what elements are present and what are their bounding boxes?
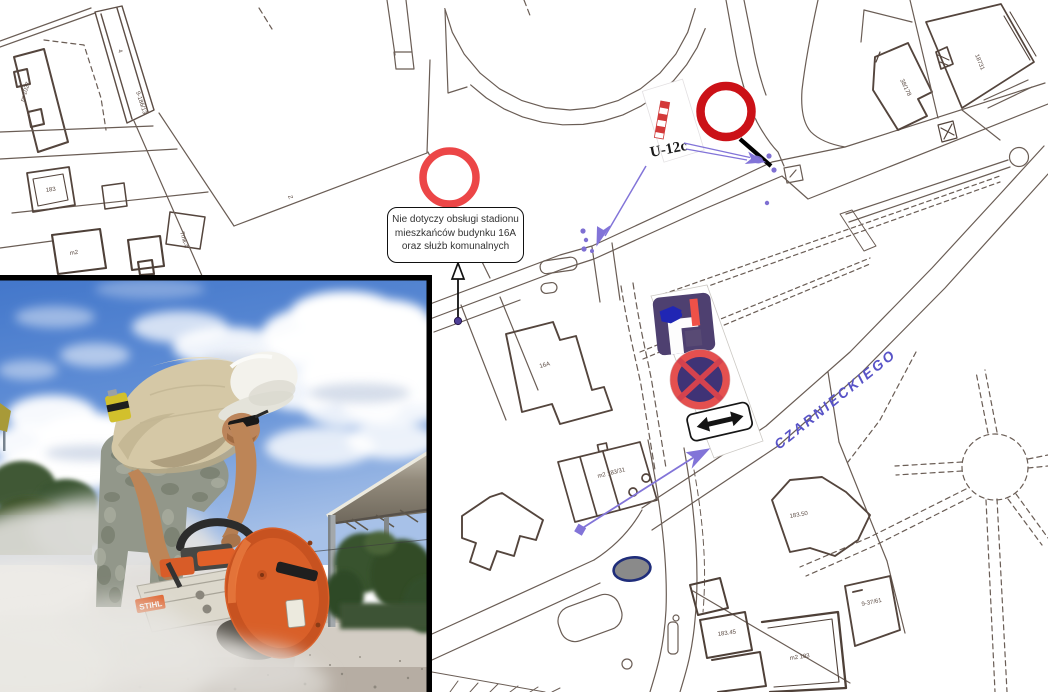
svg-text:U-12c: U-12c [649,138,689,161]
svg-text:CZARNIECKIEGO: CZARNIECKIEGO [771,346,899,453]
